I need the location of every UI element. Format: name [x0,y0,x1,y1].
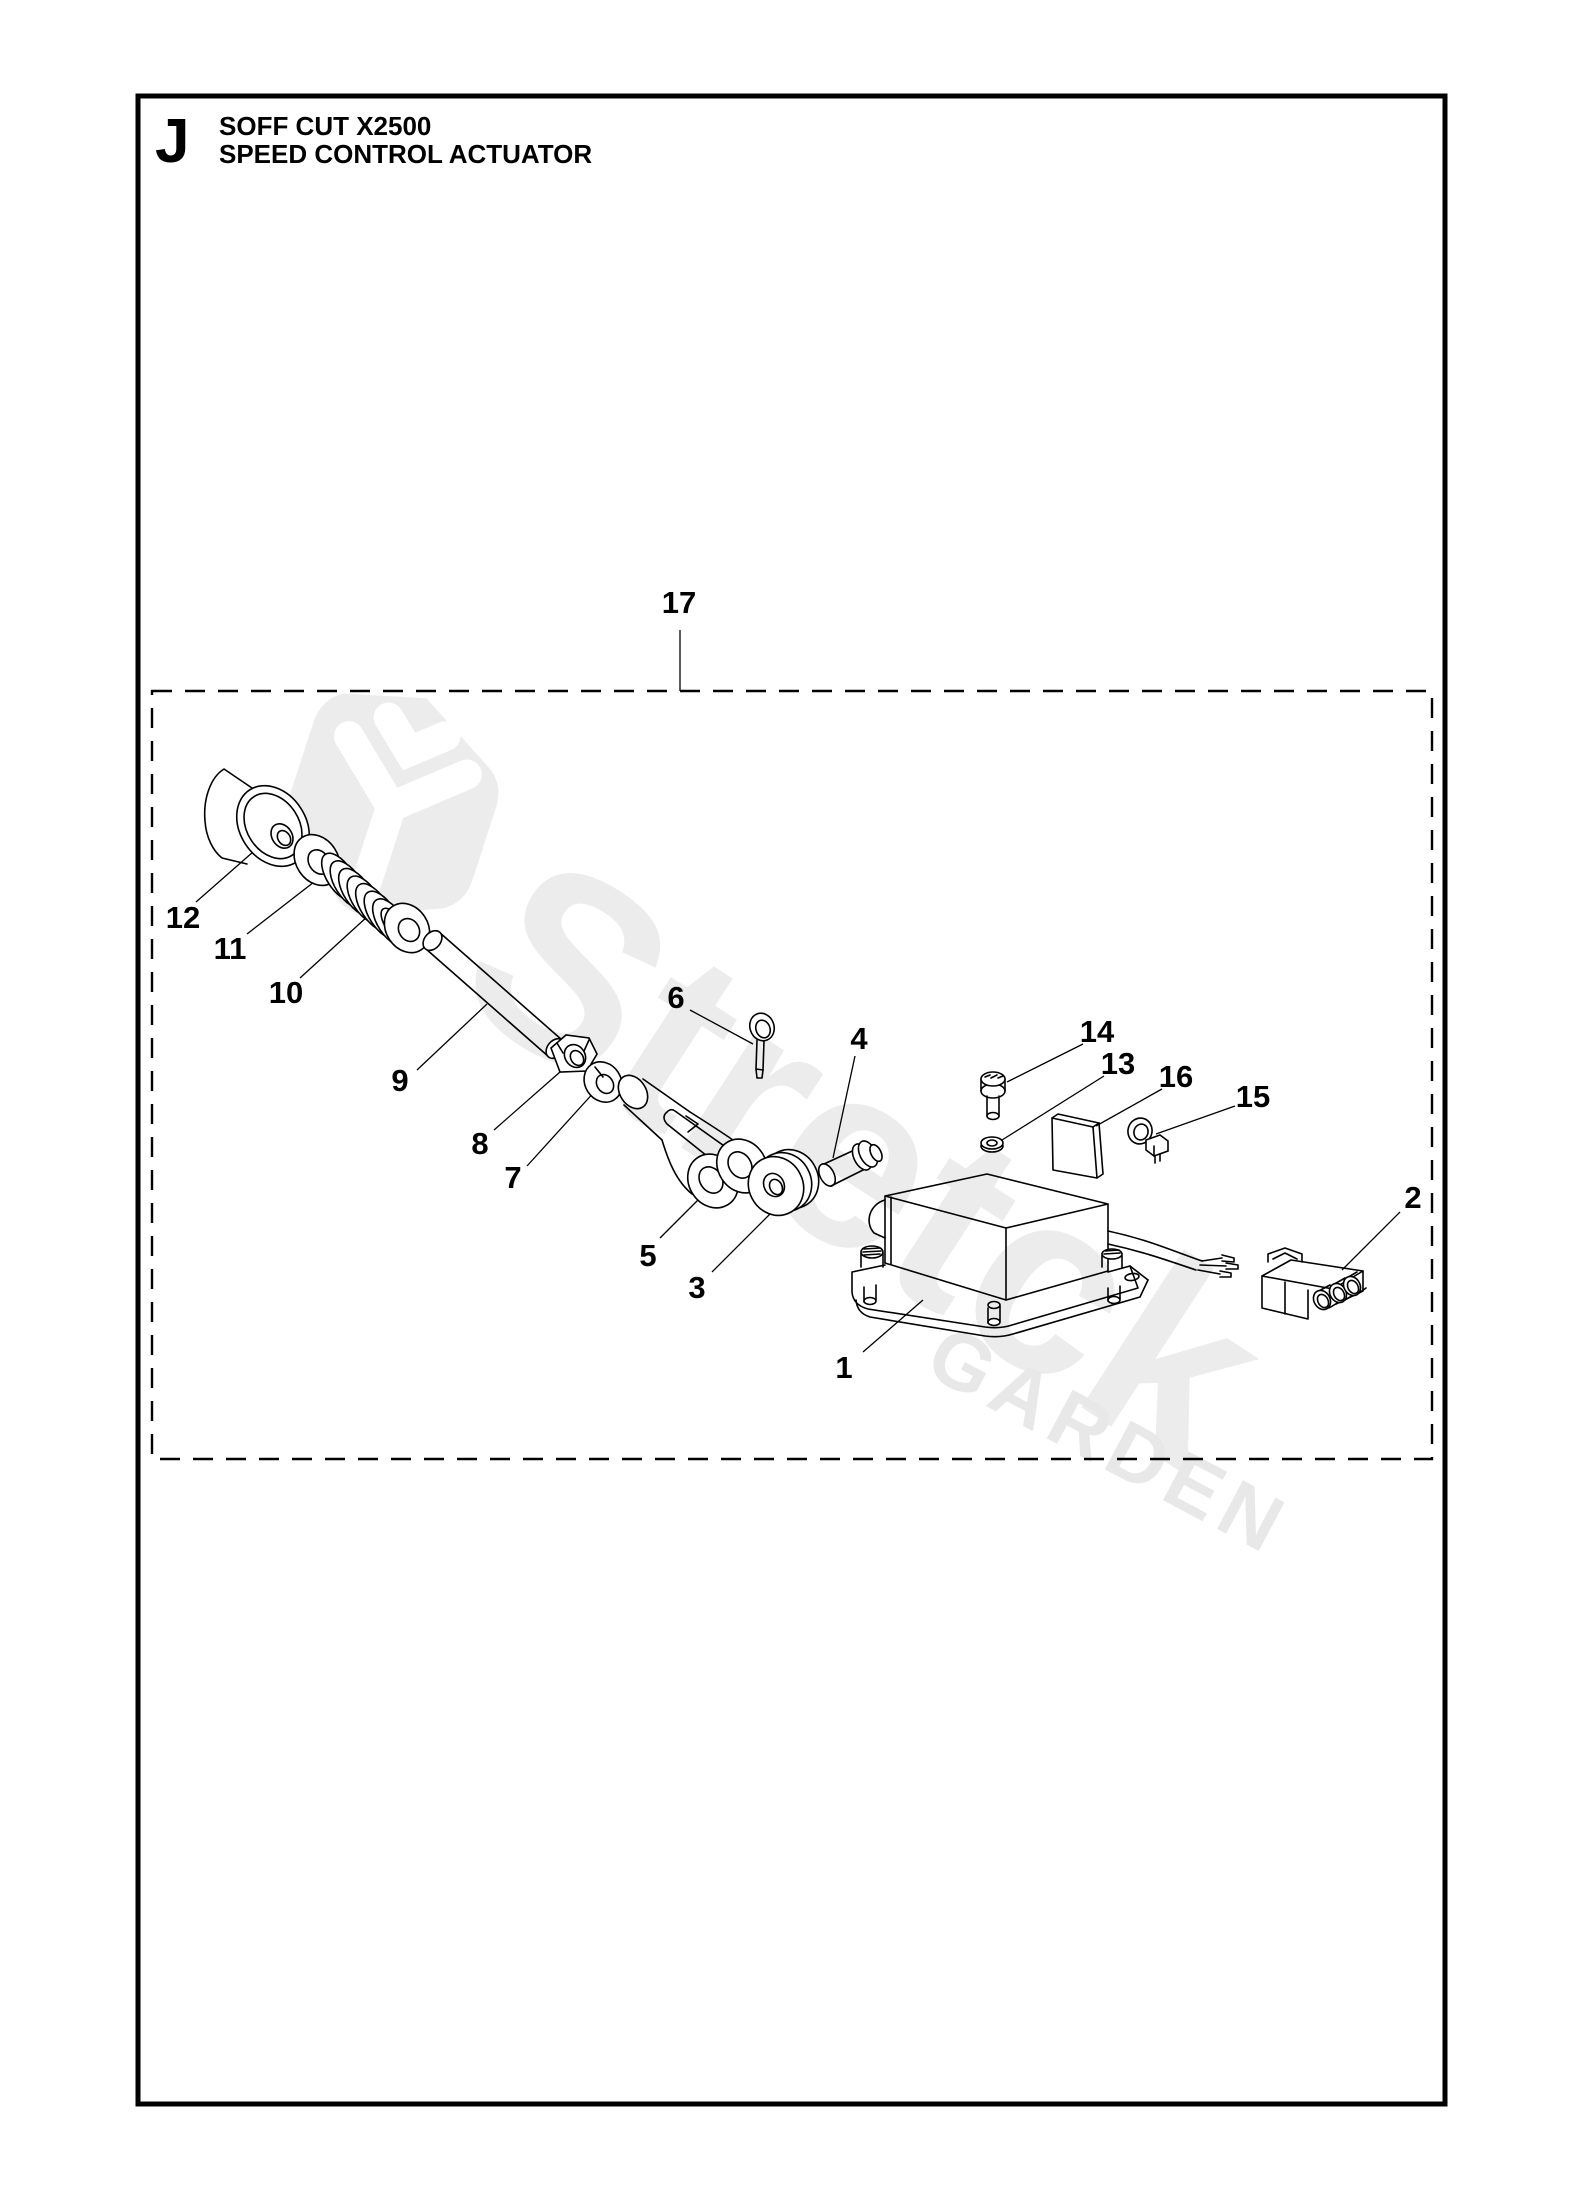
part-label-7: 7 [504,1160,521,1195]
leader-16 [1096,1089,1162,1126]
leader-2 [1342,1212,1400,1270]
part-label-17: 17 [662,585,696,620]
exploded-view-diagram: Stretck GARDEN J SOFF CUT X2500 SPEED CO… [0,0,1572,2202]
section-letter: J [155,107,189,176]
part-label-6: 6 [667,980,684,1015]
part-label-3: 3 [688,1270,705,1305]
part-14-shaft-end [987,1113,999,1120]
part-label-5: 5 [639,1238,656,1273]
part-label-2: 2 [1404,1180,1421,1215]
page-title-line1: SOFF CUT X2500 [219,111,431,141]
part-15-base [1146,1135,1168,1156]
header: J SOFF CUT X2500 SPEED CONTROL ACTUATOR [155,107,592,176]
leader-12 [196,852,253,902]
leader-11 [247,882,314,934]
part-13-top [981,1137,1003,1149]
part-label-13: 13 [1101,1046,1135,1081]
part-label-14: 14 [1080,1014,1115,1049]
parts-diagram-page: Stretck GARDEN J SOFF CUT X2500 SPEED CO… [0,0,1572,2202]
leader-14 [1007,1044,1083,1082]
part-label-1: 1 [835,1350,852,1385]
page-title-line2: SPEED CONTROL ACTUATOR [219,139,592,169]
part-label-9: 9 [391,1063,408,1098]
part-15-clip [1125,1115,1168,1163]
part-13-washer [981,1137,1003,1152]
part-6-shaft-step [756,1069,763,1070]
part-14-head-top [981,1072,1005,1086]
part-label-8: 8 [471,1126,488,1161]
watermark-logo-icon [261,667,521,944]
part-label-15: 15 [1236,1079,1270,1114]
watermark: Stretck GARDEN [261,667,1316,1572]
part-label-10: 10 [269,975,303,1010]
part-label-11: 11 [214,931,247,966]
leader-10 [300,916,368,978]
part-label-4: 4 [850,1021,868,1056]
part-label-12: 12 [166,900,200,935]
part-label-16: 16 [1159,1059,1193,1094]
leader-15 [1156,1106,1235,1134]
